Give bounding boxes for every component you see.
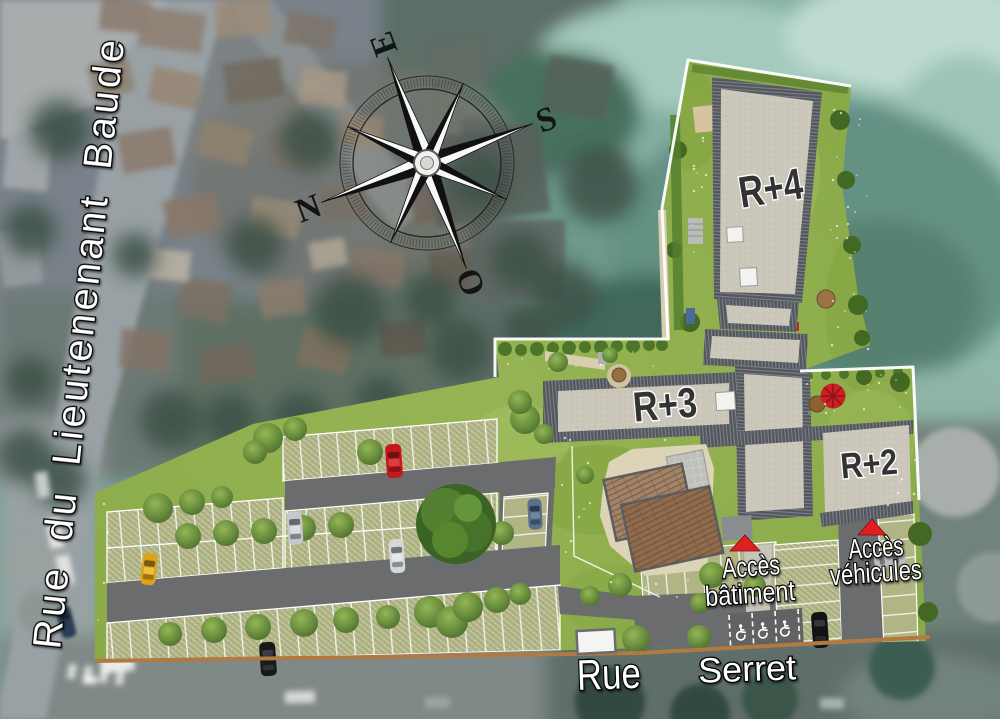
svg-text:Rue: Rue	[576, 650, 642, 700]
svg-text:R+3: R+3	[631, 378, 699, 430]
svg-text:R+4: R+4	[735, 159, 806, 217]
svg-text:bâtiment: bâtiment	[704, 575, 796, 612]
svg-text:Serret: Serret	[697, 648, 797, 690]
svg-text:véhicules: véhicules	[829, 554, 923, 591]
svg-text:R+2: R+2	[839, 441, 899, 487]
